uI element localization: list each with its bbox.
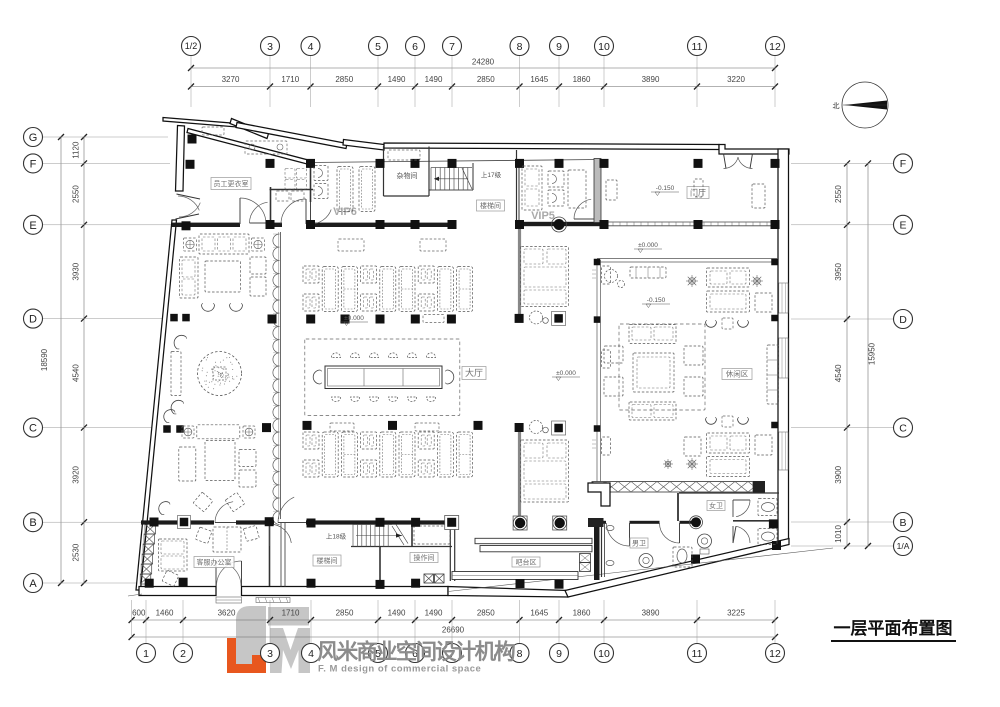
svg-text:1010: 1010: [834, 525, 843, 543]
svg-text:3620: 3620: [218, 609, 236, 618]
svg-text:8: 8: [517, 41, 523, 53]
svg-text:大厅: 大厅: [465, 367, 483, 378]
svg-text:12: 12: [769, 648, 781, 660]
svg-text:9: 9: [556, 41, 562, 53]
svg-text:1/2: 1/2: [185, 41, 198, 51]
svg-text:上18级: 上18级: [326, 532, 347, 541]
svg-text:3: 3: [267, 41, 273, 53]
svg-text:10: 10: [598, 648, 610, 660]
svg-text:1490: 1490: [388, 609, 406, 618]
svg-text:F: F: [30, 158, 37, 170]
svg-text:±0.000: ±0.000: [344, 315, 364, 322]
svg-text:11: 11: [692, 41, 703, 53]
svg-text:2850: 2850: [335, 75, 353, 84]
svg-text:6: 6: [412, 41, 418, 53]
svg-text:E: E: [29, 220, 36, 232]
svg-text:C: C: [899, 422, 907, 434]
svg-text:C: C: [29, 423, 37, 435]
svg-text:1645: 1645: [530, 609, 548, 618]
svg-text:600: 600: [132, 609, 146, 618]
svg-text:门厅: 门厅: [690, 187, 706, 197]
svg-text:男卫: 男卫: [632, 540, 646, 548]
svg-text:F. M design of commercial spac: F. M design of commercial space: [318, 664, 481, 675]
svg-text:吧台区: 吧台区: [516, 558, 537, 567]
svg-text:9: 9: [556, 648, 562, 660]
svg-text:1645: 1645: [530, 75, 548, 84]
svg-text:10: 10: [598, 41, 610, 53]
svg-text:4540: 4540: [72, 364, 81, 382]
svg-text:北: 北: [833, 102, 840, 110]
svg-text:3270: 3270: [222, 75, 240, 84]
svg-text:3220: 3220: [727, 75, 745, 84]
svg-text:2850: 2850: [336, 609, 354, 618]
svg-text:±0.000: ±0.000: [638, 242, 658, 249]
svg-text:1860: 1860: [573, 609, 591, 618]
svg-text:1490: 1490: [425, 609, 443, 618]
svg-text:3930: 3930: [72, 262, 81, 280]
svg-text:2850: 2850: [477, 609, 495, 618]
svg-text:3920: 3920: [72, 465, 81, 483]
svg-text:楼梯间: 楼梯间: [480, 201, 501, 210]
svg-text:女卫: 女卫: [709, 501, 723, 510]
svg-text:1120: 1120: [72, 141, 81, 159]
svg-text:D: D: [899, 314, 907, 326]
svg-text:上17级: 上17级: [481, 170, 502, 179]
svg-text:B: B: [899, 517, 906, 529]
svg-text:2530: 2530: [72, 543, 81, 561]
svg-text:B: B: [29, 517, 36, 529]
svg-text:风米商业空间设计机构: 风米商业空间设计机构: [317, 639, 515, 664]
svg-text:12: 12: [769, 41, 781, 53]
svg-text:18590: 18590: [40, 348, 49, 371]
svg-text:1490: 1490: [388, 75, 406, 84]
svg-text:1490: 1490: [425, 75, 443, 84]
svg-text:楼梯间: 楼梯间: [317, 556, 338, 565]
svg-text:3225: 3225: [727, 609, 745, 618]
svg-text:2: 2: [180, 648, 186, 660]
svg-text:26690: 26690: [442, 626, 465, 635]
svg-text:7: 7: [449, 41, 455, 53]
svg-text:杂物间: 杂物间: [397, 171, 418, 180]
svg-text:1/A: 1/A: [897, 541, 910, 551]
svg-text:客服办公室: 客服办公室: [197, 558, 232, 567]
svg-text:3: 3: [267, 648, 273, 660]
svg-text:操作间: 操作间: [414, 553, 435, 562]
svg-text:员工更衣室: 员工更衣室: [214, 179, 249, 188]
svg-text:±0.000: ±0.000: [556, 370, 576, 377]
svg-text:A: A: [29, 578, 37, 590]
svg-text:24280: 24280: [472, 58, 495, 67]
svg-text:VIP5: VIP5: [531, 210, 555, 222]
svg-text:1710: 1710: [282, 609, 300, 618]
svg-text:一层平面布置图: 一层平面布置图: [834, 618, 953, 638]
svg-text:11: 11: [692, 648, 703, 660]
svg-text:2550: 2550: [72, 185, 81, 203]
svg-text:3890: 3890: [642, 75, 660, 84]
svg-text:4540: 4540: [834, 364, 843, 382]
svg-text:3890: 3890: [642, 609, 660, 618]
svg-text:F: F: [900, 158, 906, 170]
svg-text:3950: 3950: [834, 262, 843, 280]
svg-text:VIP6: VIP6: [333, 206, 357, 218]
svg-text:休闲区: 休闲区: [726, 369, 749, 379]
svg-text:3900: 3900: [834, 465, 843, 483]
svg-text:D: D: [29, 314, 37, 326]
svg-text:2550: 2550: [834, 185, 843, 203]
svg-text:2850: 2850: [477, 75, 495, 84]
svg-text:1460: 1460: [156, 609, 174, 618]
svg-text:1710: 1710: [281, 75, 299, 84]
svg-text:-0.150: -0.150: [647, 297, 666, 304]
svg-text:E: E: [899, 220, 906, 232]
svg-text:4: 4: [308, 648, 314, 660]
svg-text:1: 1: [143, 648, 149, 660]
svg-text:-0.150: -0.150: [656, 185, 675, 192]
svg-text:4: 4: [308, 41, 314, 53]
svg-text:G: G: [29, 132, 38, 144]
svg-text:8: 8: [517, 648, 523, 660]
svg-text:1860: 1860: [573, 75, 591, 84]
svg-text:5: 5: [375, 41, 381, 53]
svg-text:15950: 15950: [868, 342, 877, 365]
